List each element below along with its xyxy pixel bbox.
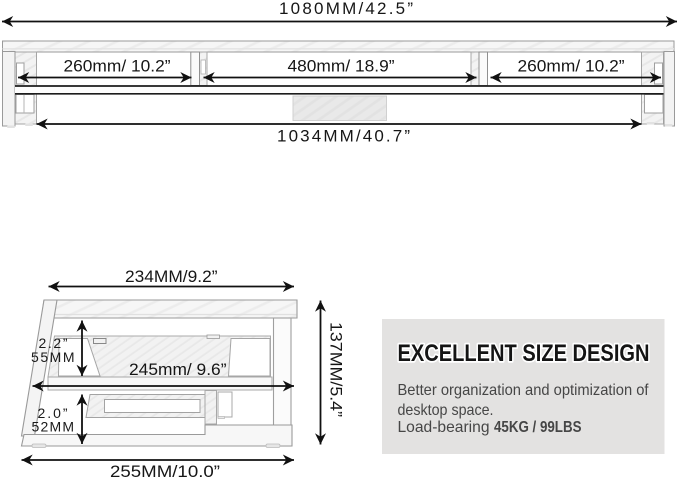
svg-text:260mm/ 10.2”: 260mm/ 10.2”: [64, 57, 171, 76]
svg-text:1034MM/40.7”: 1034MM/40.7”: [277, 127, 410, 146]
svg-text:45KG / 99LBS: 45KG / 99LBS: [494, 419, 582, 436]
svg-text:desktop space.: desktop space.: [398, 402, 494, 419]
svg-text:1080MM/42.5”: 1080MM/42.5”: [279, 0, 413, 18]
svg-text:Better organization and optimi: Better organization and optimization of: [398, 382, 650, 399]
svg-text:EXCELLENT SIZE DESIGN: EXCELLENT SIZE DESIGN: [398, 340, 650, 367]
svg-text:Load-bearing: Load-bearing: [398, 419, 490, 436]
svg-text:137MM/5.4”: 137MM/5.4”: [327, 322, 346, 417]
svg-text:234MM/9.2”: 234MM/9.2”: [125, 267, 218, 286]
svg-text:255MM/10.0”: 255MM/10.0”: [110, 462, 220, 480]
svg-text:245mm/ 9.6”: 245mm/ 9.6”: [129, 360, 227, 379]
svg-text:480mm/ 18.9”: 480mm/ 18.9”: [288, 57, 395, 76]
svg-text:52MM: 52MM: [32, 419, 75, 435]
svg-text:55MM: 55MM: [31, 349, 75, 365]
svg-text:260mm/ 10.2”: 260mm/ 10.2”: [518, 57, 625, 76]
